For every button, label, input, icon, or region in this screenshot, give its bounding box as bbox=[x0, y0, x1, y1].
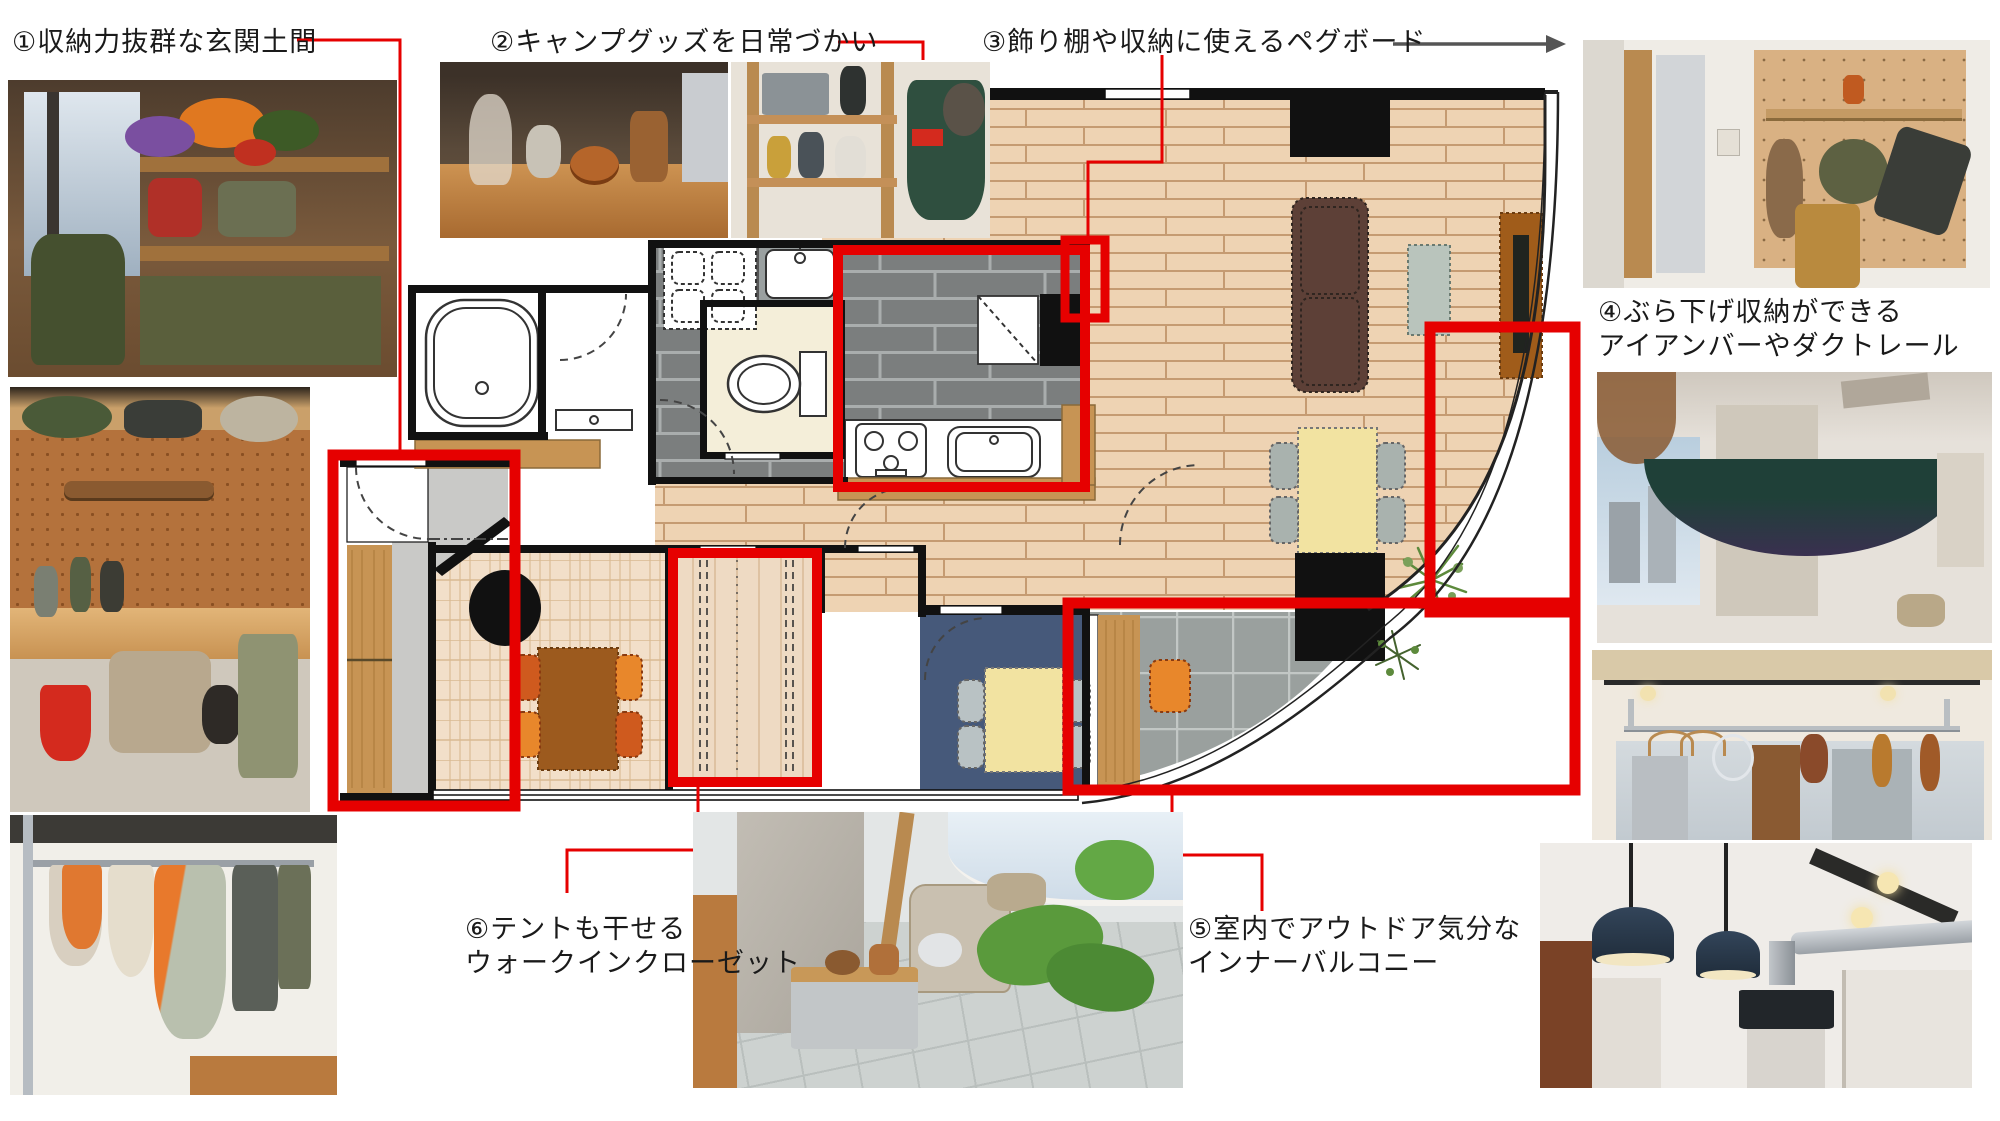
photo-decor bbox=[1766, 109, 1961, 118]
callout-label-1-text: ①収納力抜群な玄関土間 bbox=[12, 27, 317, 58]
photo-decor bbox=[869, 944, 898, 974]
photo-decor bbox=[1700, 970, 1756, 980]
photo-decor bbox=[1877, 872, 1899, 894]
photo-decor bbox=[682, 73, 728, 182]
photo-decor bbox=[1739, 990, 1834, 1029]
photo-decor bbox=[1800, 734, 1828, 783]
photo-decor bbox=[1624, 50, 1652, 278]
photo-decor bbox=[1752, 745, 1800, 840]
photo-decor bbox=[1769, 941, 1795, 985]
photo-closet-hanging bbox=[10, 815, 337, 1095]
photo-decor bbox=[232, 865, 278, 1011]
photo-decor bbox=[1629, 843, 1633, 912]
photo-iron-bar-hangers bbox=[1592, 650, 1992, 840]
connector-5 bbox=[1172, 790, 1262, 911]
photo-decor bbox=[124, 400, 202, 438]
photo-decor bbox=[202, 685, 241, 745]
photo-decor bbox=[912, 129, 943, 147]
photo-decor bbox=[190, 1056, 337, 1095]
photo-decor bbox=[125, 116, 195, 158]
photo-decor bbox=[154, 865, 226, 1039]
callout-label-1: ①収納力抜群な玄関土間 bbox=[12, 26, 317, 60]
callout-label-6-line2: ウォークインクローゼット bbox=[465, 947, 801, 981]
photo-decor bbox=[526, 125, 561, 178]
photo-decor bbox=[34, 566, 58, 617]
callout-label-3-text: ③飾り棚や収納に使えるペグボード bbox=[982, 27, 1426, 58]
photo-decor bbox=[767, 136, 790, 178]
photo-decor bbox=[840, 66, 866, 115]
photo-decor bbox=[918, 933, 962, 966]
photo-decor bbox=[835, 136, 866, 178]
photo-decor bbox=[798, 132, 824, 178]
photo-decor bbox=[469, 94, 512, 186]
photo-decor bbox=[1747, 1029, 1825, 1088]
photo-decor bbox=[1640, 686, 1656, 701]
photo-decor bbox=[1597, 372, 1676, 464]
photo-decor bbox=[1920, 734, 1940, 791]
photo-decor bbox=[747, 178, 897, 187]
callout-label-5-line2: インナーバルコニー bbox=[1188, 947, 1521, 981]
photo-decor bbox=[747, 115, 897, 124]
photo-decor bbox=[140, 246, 389, 261]
photo-decor bbox=[109, 651, 211, 753]
callout-label-2-text: ②キャンプグッズを日常づかい bbox=[490, 27, 878, 58]
photo-decor bbox=[218, 181, 296, 237]
photo-decor bbox=[140, 276, 381, 365]
photo-decor bbox=[1790, 919, 1972, 955]
photo-decor bbox=[1937, 453, 1984, 567]
callout-label-3: ③飾り棚や収納に使えるペグボード bbox=[982, 26, 1426, 60]
photo-decor bbox=[62, 865, 101, 949]
photo-decor bbox=[570, 146, 619, 185]
photo-decor bbox=[1656, 55, 1705, 273]
photo-decor bbox=[23, 815, 33, 1095]
photo-decor bbox=[943, 83, 984, 136]
photo-decor bbox=[278, 865, 311, 988]
photo-decor bbox=[31, 234, 124, 365]
photo-decor bbox=[630, 111, 667, 181]
photo-pegboard-wall bbox=[1583, 40, 1990, 288]
photo-decor bbox=[1872, 734, 1892, 787]
photo-hammock bbox=[1597, 372, 1992, 643]
photo-decor bbox=[825, 950, 859, 975]
photo-pendant-lamps bbox=[1540, 843, 1972, 1088]
photo-decor bbox=[1609, 502, 1641, 583]
callout-label-6: ⑥テントも干せる ウォークインクローゼット bbox=[465, 913, 801, 981]
photo-decor bbox=[70, 557, 91, 612]
photo-decor bbox=[1944, 699, 1950, 728]
photo-decor bbox=[762, 73, 829, 115]
callout-label-6-line1: ⑥テントも干せる bbox=[465, 913, 801, 947]
photo-decor bbox=[881, 62, 894, 238]
photo-decor bbox=[100, 561, 124, 612]
photo-workbench-pegboard bbox=[10, 387, 310, 812]
photo-decor bbox=[238, 634, 298, 779]
photo-decor bbox=[1632, 756, 1688, 840]
photo-decor bbox=[747, 62, 760, 238]
photo-decor bbox=[1075, 840, 1153, 901]
callout-label-2: ②キャンプグッズを日常づかい bbox=[490, 26, 878, 60]
photo-decor bbox=[108, 865, 154, 977]
photo-decor bbox=[1583, 40, 1624, 288]
callout-label-4: ④ぶら下げ収納ができる アイアンバーやダクトレール bbox=[1598, 296, 1960, 364]
photo-decor bbox=[1596, 953, 1669, 965]
photo-decor bbox=[1604, 680, 1980, 685]
photo-decor bbox=[1628, 699, 1634, 728]
photo-camp-goods-coffee bbox=[440, 62, 728, 238]
photo-decor bbox=[1842, 970, 1972, 1088]
photo-decor bbox=[1717, 129, 1739, 156]
photo-decor bbox=[1540, 941, 1592, 1088]
callout-label-4-line1: ④ぶら下げ収納ができる bbox=[1598, 296, 1960, 330]
photo-decor bbox=[791, 967, 918, 1050]
photo-decor bbox=[1592, 978, 1661, 1088]
callout-label-5-line1: ⑤室内でアウトドア気分な bbox=[1188, 913, 1521, 947]
photo-decor bbox=[148, 178, 202, 237]
photo-decor bbox=[10, 815, 337, 843]
photo-entrance-doma-storage bbox=[8, 80, 397, 377]
photo-camp-shelf bbox=[731, 62, 990, 238]
photo-decor bbox=[22, 396, 112, 439]
photo-decor bbox=[40, 685, 91, 762]
photo-decor bbox=[1592, 650, 1992, 680]
photo-decor bbox=[220, 396, 298, 443]
photo-decor bbox=[1724, 843, 1728, 939]
annotated-floor-plan-page: ①収納力抜群な玄関土間 ②キャンプグッズを日常づかい ③飾り棚や収納に使えるペグ… bbox=[0, 0, 2000, 1121]
callout-label-4-line2: アイアンバーやダクトレール bbox=[1598, 330, 1960, 364]
photo-decor bbox=[64, 481, 214, 498]
photo-decor bbox=[1897, 594, 1944, 627]
photo-decor bbox=[1843, 75, 1863, 105]
photo-decor bbox=[1851, 907, 1873, 929]
photo-decor bbox=[1712, 734, 1754, 782]
callout-label-5: ⑤室内でアウトドア気分な インナーバルコニー bbox=[1188, 913, 1521, 981]
photo-decor bbox=[1795, 204, 1860, 288]
photo-decor bbox=[1880, 686, 1896, 701]
